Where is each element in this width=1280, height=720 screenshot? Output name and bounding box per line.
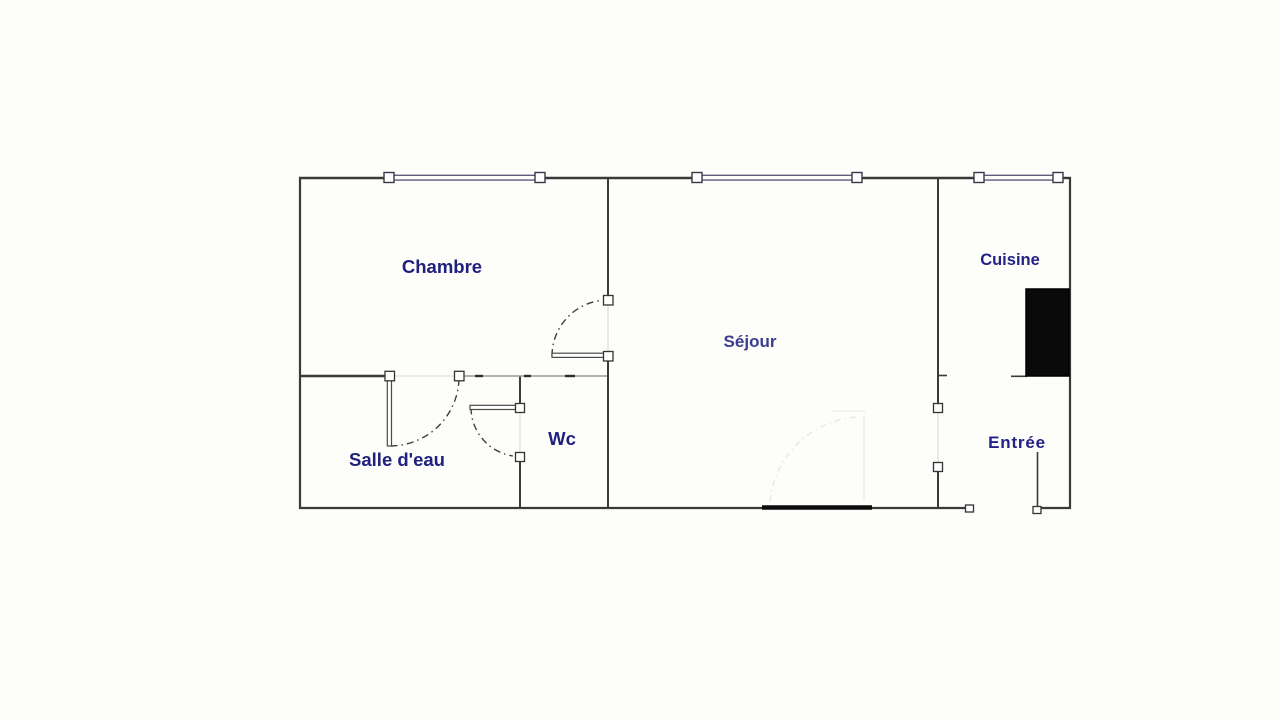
svg-text:Cuisine: Cuisine (980, 251, 1040, 269)
svg-text:Séjour: Séjour (724, 332, 777, 351)
svg-text:Chambre: Chambre (402, 256, 482, 277)
svg-text:Entrée: Entrée (988, 433, 1046, 452)
svg-text:Wc: Wc (548, 428, 576, 449)
svg-text:Salle d'eau: Salle d'eau (349, 449, 445, 470)
